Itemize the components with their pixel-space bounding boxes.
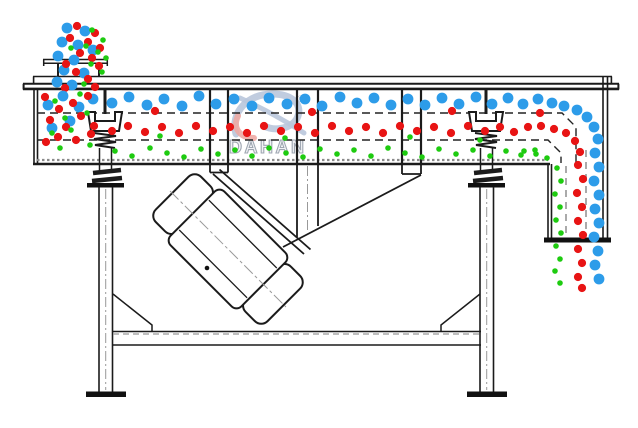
green-particle (62, 115, 68, 121)
green-particle (57, 145, 63, 151)
red-particle (328, 122, 336, 130)
green-particle (554, 165, 560, 171)
green-particle (552, 268, 558, 274)
green-particle (407, 134, 413, 140)
blue-particle (559, 101, 570, 112)
red-particle (510, 128, 518, 136)
blue-particle (58, 91, 69, 102)
blue-particle (43, 100, 54, 111)
blue-particle (594, 274, 605, 285)
green-particle (99, 69, 105, 75)
green-particle (533, 151, 539, 157)
vibration-motor (143, 164, 313, 334)
red-particle (578, 259, 586, 267)
foot-pad (467, 392, 507, 398)
left-gusset (113, 294, 152, 332)
red-particle (62, 60, 70, 68)
green-particle (49, 130, 55, 136)
red-particle (396, 122, 404, 130)
red-particle (226, 123, 234, 131)
blue-particle (582, 112, 593, 123)
red-particle (76, 49, 84, 57)
blue-particle (317, 101, 328, 112)
red-particle (379, 129, 387, 137)
green-particle (558, 230, 564, 236)
red-particle (87, 130, 95, 138)
red-particle (536, 109, 544, 117)
blue-particle (352, 98, 363, 109)
red-particle (579, 175, 587, 183)
blue-particle (420, 100, 431, 111)
red-particle (308, 108, 316, 116)
red-particle (77, 112, 85, 120)
green-particle (283, 150, 289, 156)
green-particle (419, 154, 425, 160)
diagram-svg: ® DAHAN (0, 0, 638, 428)
blue-particle (487, 99, 498, 110)
green-particle (557, 280, 563, 286)
blue-particle (80, 26, 91, 37)
chute-bottom-flange (544, 238, 611, 243)
green-particle (100, 37, 106, 43)
green-particle (558, 178, 564, 184)
left-spring-assembly (87, 90, 124, 188)
blue-particle (159, 94, 170, 105)
blue-particle (454, 99, 465, 110)
blue-particle (594, 218, 605, 229)
particles (41, 22, 604, 292)
red-particle (362, 123, 370, 131)
green-particle (552, 191, 558, 197)
red-particle (151, 107, 159, 115)
green-particle (249, 153, 255, 159)
red-particle (576, 148, 584, 156)
blue-particle (593, 134, 604, 145)
red-particle (579, 231, 587, 239)
leg-walls (99, 187, 113, 392)
blue-particle (386, 100, 397, 111)
red-particle (448, 107, 456, 115)
red-particle (562, 129, 570, 137)
red-particle (209, 127, 217, 135)
red-particle (42, 138, 50, 146)
green-particle (553, 243, 559, 249)
box-right-wall (603, 77, 608, 240)
red-particle (574, 245, 582, 253)
blue-particle (62, 23, 73, 34)
spring-base-plate (468, 183, 505, 188)
green-particle (103, 55, 109, 61)
blue-particle (264, 93, 275, 104)
red-particle (46, 116, 54, 124)
red-particle (573, 189, 581, 197)
red-particle (260, 122, 268, 130)
blue-particle (369, 93, 380, 104)
green-particle (544, 155, 550, 161)
cross-beam (112, 332, 481, 346)
blue-particle (590, 148, 601, 159)
right-leg (467, 187, 507, 397)
blue-particle (518, 99, 529, 110)
motor-bolt (205, 266, 210, 271)
green-particle (351, 147, 357, 153)
green-particle (147, 145, 153, 151)
blue-particle (229, 94, 240, 105)
green-particle (317, 146, 323, 152)
blue-particle (590, 204, 601, 215)
green-particle (84, 110, 90, 116)
green-particle (77, 91, 83, 97)
red-particle (54, 133, 62, 141)
blue-particle (335, 92, 346, 103)
blue-particle (52, 77, 63, 88)
red-particle (537, 122, 545, 130)
red-particle (574, 273, 582, 281)
red-particle (243, 129, 251, 137)
green-particle (181, 154, 187, 160)
green-particle (300, 154, 306, 160)
blue-particle (211, 99, 222, 110)
red-particle (464, 122, 472, 130)
green-particle (470, 147, 476, 153)
red-particle (73, 22, 81, 30)
blue-particle (403, 94, 414, 105)
blue-particle (533, 94, 544, 105)
blue-particle (594, 190, 605, 201)
green-particle (112, 148, 118, 154)
blue-particle (589, 176, 600, 187)
green-particle (52, 98, 58, 104)
blue-particle (547, 98, 558, 109)
blue-particle (300, 94, 311, 105)
green-particle (402, 150, 408, 156)
green-particle (557, 256, 563, 262)
blue-particle (572, 105, 583, 116)
box-left-wall (34, 90, 38, 164)
green-particle (553, 217, 559, 223)
blue-particle (282, 99, 293, 110)
green-particle (81, 81, 87, 87)
red-particle (481, 127, 489, 135)
red-particle (496, 123, 504, 131)
green-particle (68, 45, 74, 51)
vibrating-screen-diagram: ® DAHAN (0, 0, 638, 428)
spring-coil (94, 133, 116, 148)
red-particle (108, 127, 116, 135)
red-particle (72, 136, 80, 144)
right-mount-tab (402, 164, 421, 174)
green-particle (453, 151, 459, 157)
spring-rods (100, 148, 112, 171)
green-particle (95, 49, 101, 55)
green-particle (88, 61, 94, 67)
red-particle (574, 161, 582, 169)
blue-particle (593, 246, 604, 257)
red-particle (574, 217, 582, 225)
green-particle (68, 127, 74, 133)
red-particle (69, 99, 77, 107)
blue-particle (471, 92, 482, 103)
red-particle (95, 62, 103, 70)
right-gusset (441, 294, 480, 332)
right-spring-assembly (468, 90, 505, 188)
green-particle (89, 27, 95, 33)
blue-particle (437, 93, 448, 104)
green-particle (521, 148, 527, 154)
green-particle (557, 204, 563, 210)
green-particle (334, 151, 340, 157)
top-cover-line (33, 77, 612, 84)
red-particle (141, 128, 149, 136)
blue-particle (503, 93, 514, 104)
green-particle (129, 153, 135, 159)
red-particle (192, 122, 200, 130)
red-particle (571, 137, 579, 145)
red-particle (345, 127, 353, 135)
red-particle (277, 127, 285, 135)
blue-particle (194, 91, 205, 102)
chute-left-wall (548, 164, 552, 239)
red-particle (91, 83, 99, 91)
red-particle (158, 123, 166, 131)
spring-clamp (473, 170, 503, 181)
red-particle (72, 68, 80, 76)
green-particle (83, 43, 89, 49)
spring-base-plate (87, 183, 124, 188)
red-particle (84, 92, 92, 100)
red-particle (413, 127, 421, 135)
green-particle (503, 148, 509, 154)
blue-particle (73, 40, 84, 51)
green-particle (368, 153, 374, 159)
red-particle (66, 34, 74, 42)
red-particle (88, 54, 96, 62)
blue-particle (589, 232, 600, 243)
red-particle (447, 129, 455, 137)
red-particle (311, 129, 319, 137)
green-particle (266, 145, 272, 151)
left-leg (86, 187, 126, 397)
red-particle (175, 129, 183, 137)
green-particle (157, 133, 163, 139)
foot-pad (86, 392, 126, 398)
blue-particle (589, 122, 600, 133)
green-particle (385, 145, 391, 151)
red-particle (294, 123, 302, 131)
green-particle (232, 147, 238, 153)
green-particle (487, 153, 493, 159)
green-particle (477, 137, 483, 143)
leg-walls (480, 187, 494, 392)
green-particle (282, 135, 288, 141)
red-particle (41, 93, 49, 101)
green-particle (164, 150, 170, 156)
spring-clamp (92, 170, 122, 181)
blue-particle (594, 162, 605, 173)
red-particle (578, 203, 586, 211)
left-mount-tab (210, 164, 228, 173)
blue-particle (142, 100, 153, 111)
blue-particle (177, 101, 188, 112)
red-particle (550, 125, 558, 133)
green-particle (436, 146, 442, 152)
green-particle (198, 146, 204, 152)
red-particle (55, 105, 63, 113)
red-particle (430, 123, 438, 131)
blue-particle (53, 51, 64, 62)
red-particle (124, 122, 132, 130)
green-particle (87, 142, 93, 148)
red-particle (524, 123, 532, 131)
blue-particle (124, 92, 135, 103)
green-particle (215, 151, 221, 157)
red-particle (578, 284, 586, 292)
blue-particle (247, 101, 258, 112)
blue-particle (590, 260, 601, 271)
blue-particle (107, 98, 118, 109)
motor-brace-right (283, 175, 421, 247)
red-particle (90, 122, 98, 130)
blue-particle (57, 37, 68, 48)
